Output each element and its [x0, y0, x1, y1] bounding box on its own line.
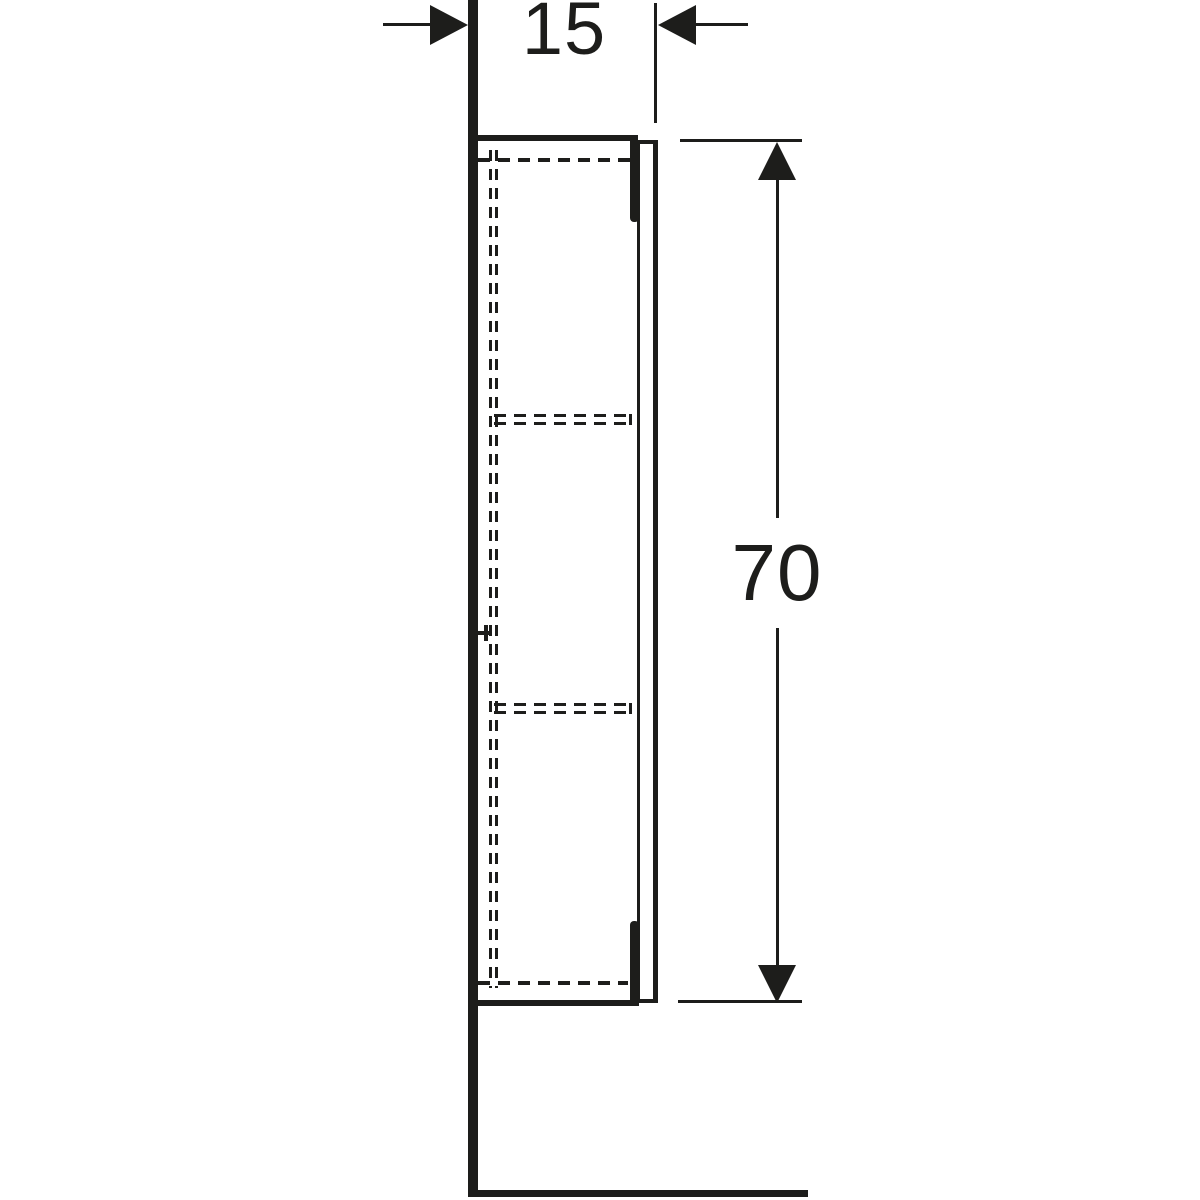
shelf-upper-bottom-line	[494, 422, 632, 425]
shelf-lower	[494, 703, 632, 714]
cabinet-bottom-inner-hidden-line	[478, 981, 628, 985]
shelf-lower-top-line	[494, 703, 632, 706]
cabinet-top-panel	[478, 135, 638, 141]
back-panel-hidden-line-inner	[495, 150, 498, 988]
shelf-upper	[494, 414, 632, 425]
door-bottom-edge	[637, 999, 658, 1003]
door-front-face	[653, 140, 658, 1003]
depth-dim-right-arrow-icon	[658, 5, 696, 45]
depth-dim-extension-line	[654, 3, 657, 123]
cabinet-top-inner-hidden-line	[478, 158, 631, 162]
floor-line	[468, 1190, 808, 1197]
height-dimension-label: 70	[716, 533, 838, 613]
shelf-lower-bottom-line	[494, 711, 632, 714]
door-top-edge	[637, 140, 658, 144]
shelf-lower-front-cap	[629, 703, 632, 714]
depth-dim-right-tail	[696, 23, 748, 26]
height-dim-line-upper	[776, 176, 779, 518]
cabinet-bottom-panel	[478, 1000, 639, 1006]
technical-drawing: 15 70	[0, 0, 1200, 1200]
shelf-upper-top-line	[494, 414, 632, 417]
shelf-upper-front-cap	[629, 414, 632, 425]
depth-dimension-label: 15	[504, 0, 624, 66]
depth-dim-left-arrow-icon	[430, 5, 468, 45]
door-back-face-thick-top	[630, 140, 639, 222]
mounting-bracket-mark-vertical	[484, 625, 488, 641]
back-panel-hidden-line-outer	[489, 150, 492, 988]
depth-dim-left-tail	[383, 23, 431, 26]
door-back-face-thin	[637, 144, 640, 999]
door-back-face-thick-bottom	[630, 921, 639, 1003]
height-dim-down-arrow-icon	[758, 965, 796, 1003]
height-dim-up-arrow-icon	[758, 142, 796, 180]
height-dim-line-lower	[776, 628, 779, 968]
wall-line	[468, 0, 478, 1197]
